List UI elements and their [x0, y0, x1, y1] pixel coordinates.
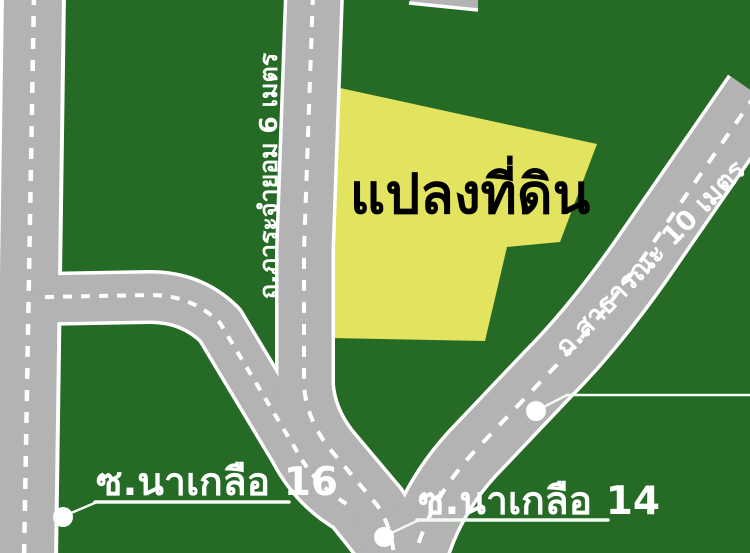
- land-plot-label: แปลงที่ดิน: [350, 155, 591, 226]
- easement-road-label: ถ.ภาระจำยอม 6 เมตร: [254, 52, 283, 299]
- map-canvas: แปลงที่ดิน ถ.ภาระจำยอม 6 เมตร ถ.สาธารณะ …: [0, 0, 750, 553]
- soi-naklua-16-label: ซ.นาเกลือ 16: [96, 460, 338, 505]
- public-road-callout-dot: [526, 401, 546, 421]
- land-plot-location-map: แปลงที่ดิน ถ.ภาระจำยอม 6 เมตร ถ.สาธารณะ …: [0, 0, 750, 553]
- soi-naklua-14-callout-dot: [374, 527, 394, 547]
- soi-naklua-14-label: ซ.นาเกลือ 14: [418, 479, 660, 524]
- soi-naklua-16-callout-dot: [53, 507, 73, 527]
